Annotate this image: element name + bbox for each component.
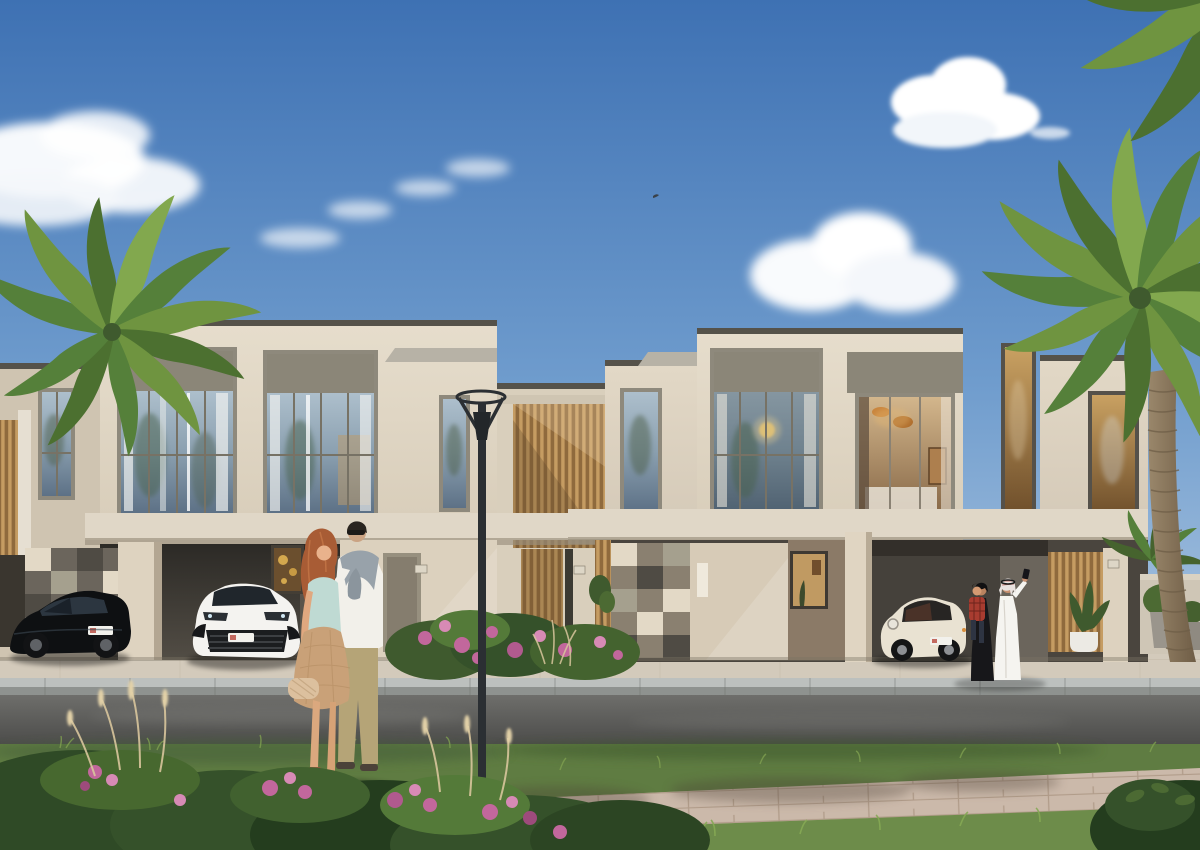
plate-mark	[90, 628, 96, 633]
art-window-interior	[274, 548, 301, 591]
tree-reflection	[446, 424, 462, 476]
white-pot	[1070, 632, 1098, 652]
plaid-shirt	[969, 597, 985, 621]
tree-canopy	[599, 591, 615, 613]
house-number-plaque	[1108, 560, 1119, 568]
spandrel-panel	[714, 352, 819, 392]
bed	[865, 487, 937, 509]
roof-coping	[385, 348, 497, 362]
window-right-1	[710, 348, 823, 513]
woman-face	[317, 546, 332, 561]
checker-sq	[637, 566, 663, 589]
house-number-plaque	[574, 566, 585, 574]
window-left-edge	[439, 395, 470, 512]
child-leg	[979, 621, 984, 643]
checker-sq	[663, 543, 690, 566]
tree-reflection	[629, 415, 651, 475]
man-shoe	[336, 762, 355, 769]
window-link-right	[620, 388, 662, 515]
road-worn-strip-2	[630, 713, 1070, 731]
window-right-2	[847, 352, 963, 513]
shrub-mass	[530, 624, 640, 680]
child-leg	[971, 620, 976, 640]
gold-art-disc	[289, 568, 297, 576]
window-left-2	[263, 350, 378, 517]
sedan-rim	[100, 639, 112, 651]
checker-sq	[637, 612, 663, 635]
reflection	[1009, 380, 1027, 460]
suv-headlight	[264, 612, 290, 621]
curtain	[717, 394, 727, 507]
amber-marker	[962, 628, 966, 632]
mullion	[42, 452, 71, 454]
sunglasses	[347, 530, 365, 535]
reflection	[1100, 416, 1124, 484]
dark-curtain	[859, 397, 869, 509]
sports-headlight	[888, 619, 898, 629]
palm-crown-center	[103, 323, 121, 341]
checker-sq	[663, 635, 690, 658]
lamp-pole	[478, 404, 486, 794]
gold-art-disc	[278, 555, 288, 565]
right-main-cap	[697, 328, 963, 334]
child-face	[973, 587, 982, 596]
plate-mark	[230, 635, 236, 640]
pier-shade	[866, 532, 872, 662]
house-number-plaque	[415, 565, 427, 573]
curtain	[270, 395, 280, 511]
curtain-streak	[306, 395, 310, 511]
window-right-narrow-1	[1001, 343, 1036, 517]
road-worn-strip	[90, 707, 470, 725]
link-cap	[497, 383, 620, 389]
checker-sq	[77, 548, 103, 571]
checker-sq	[663, 589, 690, 612]
grass-shade-2	[500, 740, 1100, 760]
sports-rim	[897, 645, 907, 655]
checker-sq	[611, 543, 637, 566]
lit-picture-window	[790, 551, 828, 609]
checker-sq	[51, 571, 77, 594]
curtain	[160, 393, 166, 511]
sedan-rim	[30, 639, 42, 651]
spandrel-panel	[267, 354, 374, 393]
sports-rim	[944, 645, 954, 655]
headlight-led	[281, 614, 285, 618]
gold-art-disc	[281, 578, 287, 584]
spandrel-panel-wide	[847, 352, 963, 393]
render-viewport	[0, 0, 1200, 850]
palm-crown-center	[1129, 287, 1151, 309]
checker-sq	[25, 548, 51, 571]
mullion	[56, 392, 58, 496]
right-coping	[638, 352, 700, 366]
curtain	[804, 394, 816, 507]
townhouse-render	[0, 0, 1200, 850]
curtain	[360, 395, 371, 511]
sheer-curtain	[941, 397, 951, 509]
timber-slat-strip	[0, 420, 18, 555]
pendant-glow	[874, 408, 910, 428]
interior-art	[812, 560, 821, 575]
suv-headlight	[203, 612, 228, 621]
carport-fascia	[872, 540, 1048, 556]
tree-reflection	[285, 420, 315, 500]
link-coping	[497, 395, 620, 404]
pier-shade	[154, 542, 162, 660]
curtain	[216, 393, 228, 511]
man-shoe	[360, 764, 378, 771]
plate-mark	[932, 639, 937, 643]
headlight-led	[208, 614, 212, 618]
artwork-window	[271, 545, 304, 594]
slit-window	[697, 563, 708, 597]
